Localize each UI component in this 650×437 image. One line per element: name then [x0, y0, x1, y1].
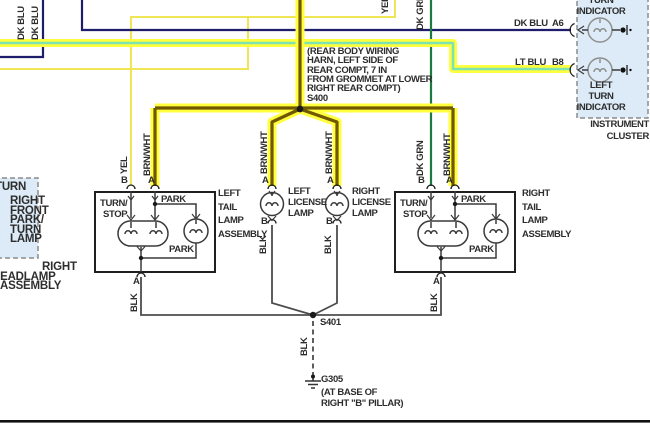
left-tail-caption-3: LAMP [218, 216, 244, 226]
wire-label-dkblu-a6: DK BLU [514, 19, 548, 29]
pin-a-left-tail: A [148, 176, 155, 186]
ground-symbol-g305 [305, 374, 321, 388]
right-tail-caption-3: LAMP [522, 216, 548, 226]
wire-label-dkblu-2: DK BLU [31, 6, 41, 40]
right-tail-park-top: PARK [461, 195, 486, 205]
headlamp-caption-3: ASSEMBLY [0, 281, 61, 293]
left-turn-indicator-label-1: LEFT [561, 81, 641, 91]
left-license-caption-1: LEFT [288, 187, 310, 197]
wire-label-brnwht-right-license: BRN/WHT [325, 132, 335, 174]
headlamp-box-line-5: LAMP [10, 234, 42, 246]
wire-label-dkblu-1: DK BLU [17, 6, 27, 40]
right-tail-caption-2: TAIL [522, 203, 541, 213]
left-turn-indicator-label-2: TURN [561, 92, 641, 102]
headlamp-box-top-label: TURN [0, 182, 26, 194]
splice-s401-label: S401 [320, 318, 341, 328]
right-tail-park-bottom: PARK [469, 245, 494, 255]
wire-label-dkgrn-right-tail: DK GRN [416, 141, 426, 176]
pin-b-left-tail: B [121, 176, 128, 186]
right-license-caption-3: LAMP [352, 209, 378, 219]
left-tail-park-top: PARK [161, 195, 186, 205]
wire-label-blk-ground: BLK [300, 338, 310, 356]
wire-label-yel-top: YEL [381, 0, 391, 14]
left-tail-park-bottom: PARK [169, 245, 194, 255]
brn-wht-wire-highlighted [155, 0, 453, 186]
wire-label-brnwht-right-tail: BRN/WHT [443, 134, 453, 176]
instrument-cluster-caption-2: CLUSTER [549, 132, 649, 142]
ground-g305-note-2: RIGHT "B" PILLAR) [321, 399, 403, 409]
pin-a-left-license: A [262, 176, 269, 186]
wire-label-blk-left-tail: BLK [130, 294, 140, 312]
left-tail-caption-2: TAIL [218, 203, 237, 213]
splice-s400-dot [297, 106, 304, 113]
wire-label-brnwht-left-license: BRN/WHT [260, 132, 270, 174]
pin-b-right-tail: B [418, 176, 425, 186]
lt-blu-wire-highlighted [0, 43, 571, 69]
wire-label-yel-left-tail: YEL [120, 157, 130, 174]
wire-label-brnwht-left-tail: BRN/WHT [143, 134, 153, 176]
right-turn-indicator-label-1: TURN [561, 0, 641, 6]
wire-label-blk-right-tail: BLK [430, 294, 440, 312]
left-tail-turn-stop-1: TURN/ [100, 199, 127, 209]
instrument-cluster-caption-1: INSTRUMENT [549, 120, 649, 130]
wiring-diagram: DK BLU DK BLU YEL DK GRN DK BLU A6 LT BL… [0, 0, 650, 437]
left-tail-turn-stop-2: STOP [103, 210, 127, 220]
s400-splice-label: S400 [307, 94, 328, 104]
right-license-caption-1: RIGHT [352, 187, 380, 197]
left-tail-caption-1: LEFT [218, 189, 240, 199]
right-tail-turn-stop-1: TURN/ [400, 199, 427, 209]
right-tail-caption-4: ASSEMBLY [522, 230, 571, 240]
right-license-caption-2: LICENSE [352, 198, 391, 208]
pin-b-left-license: B [261, 217, 268, 227]
dk-blu-wires [0, 0, 571, 57]
right-tail-turn-stop-2: STOP [403, 210, 427, 220]
ground-g305-label: G305 [321, 375, 343, 385]
wire-label-dkgrn-top: DK GRN [416, 0, 426, 30]
left-turn-indicator-label-3: INDICATOR [561, 103, 641, 113]
left-license-caption-3: LAMP [288, 209, 314, 219]
splice-s401-dot [310, 312, 316, 318]
pin-gnd-left-tail: A [133, 277, 140, 287]
right-turn-indicator-label-2: INDICATOR [561, 7, 641, 17]
wire-label-blk-left-license: BLK [259, 236, 269, 254]
wire-label-ltblu-b8: LT BLU [515, 58, 546, 68]
ground-g305-note-1: (AT BASE OF [321, 388, 377, 398]
pin-b8: B8 [552, 58, 563, 68]
frame-line [0, 420, 650, 423]
wire-label-blk-right-license: BLK [324, 236, 334, 254]
right-tail-caption-1: RIGHT [522, 189, 550, 199]
pin-a-right-license: A [327, 176, 334, 186]
pin-gnd-right-tail: A [433, 277, 440, 287]
left-license-caption-2: LICENSE [288, 198, 327, 208]
pin-a6: A6 [552, 19, 563, 29]
pin-b-right-license: B [326, 217, 333, 227]
pin-a-right-tail: A [446, 176, 453, 186]
